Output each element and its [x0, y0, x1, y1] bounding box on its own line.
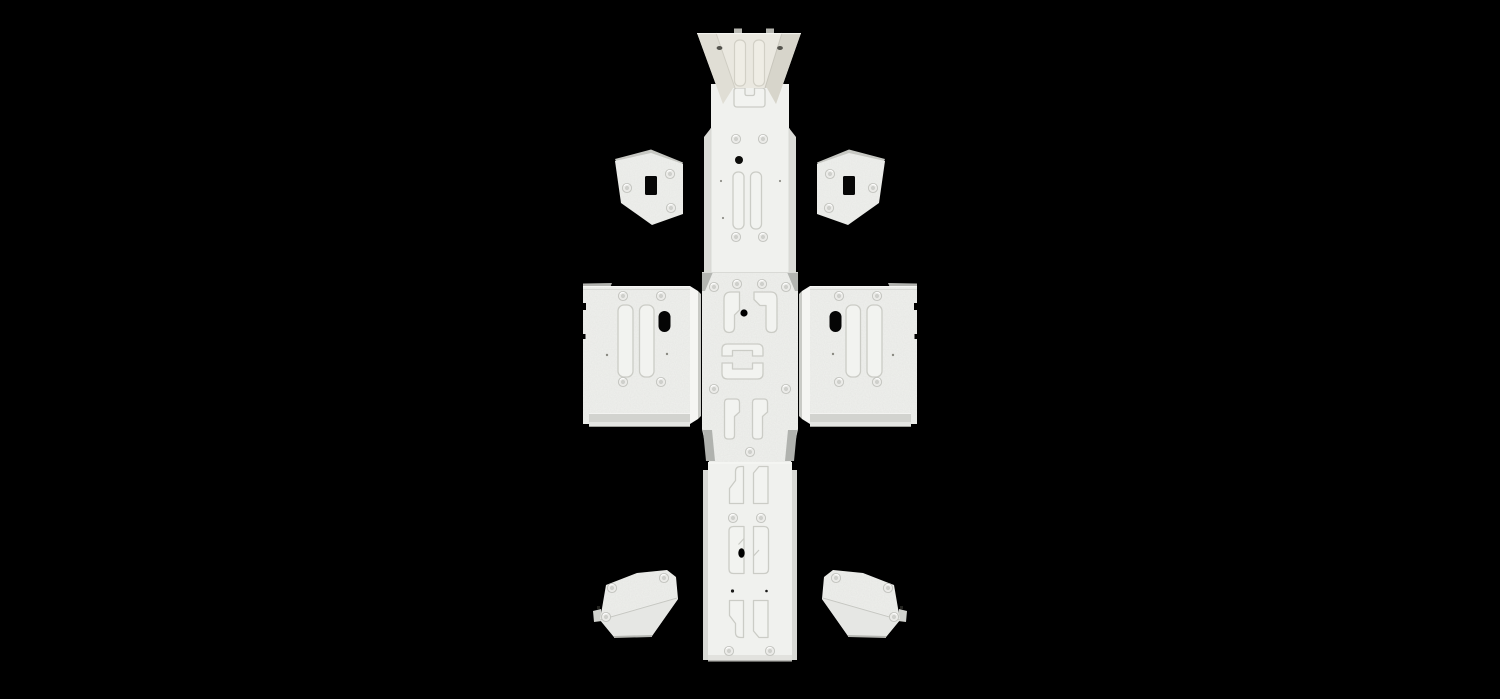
spine-lower — [703, 462, 797, 661]
wing-plate-left — [583, 283, 701, 427]
pilot-dot — [731, 589, 734, 592]
spine-lower-right-flange — [792, 470, 797, 660]
bolt-hole — [732, 279, 741, 288]
bolt-hole — [607, 583, 616, 592]
edge-notch — [583, 303, 586, 310]
spine-upper-right-flange — [789, 128, 796, 283]
rib-stamp — [754, 601, 769, 638]
bolt-hole — [618, 377, 627, 386]
bolt-hole — [758, 134, 767, 143]
spine-lower-plate — [708, 462, 792, 661]
oval-cutout — [738, 548, 744, 558]
rib-stamp — [640, 305, 655, 377]
mount-tab — [766, 29, 774, 34]
wing-bottom-flange-lip — [589, 422, 690, 426]
mount-tab — [734, 29, 742, 34]
spine-bottom-lip — [708, 655, 792, 661]
rib-stamp — [754, 40, 765, 86]
bolt-hole — [665, 169, 674, 178]
pilot-dot — [765, 590, 768, 593]
rib-stamp — [754, 467, 769, 504]
wing-plate-right — [799, 283, 917, 427]
edge-notch — [597, 606, 600, 609]
bolt-hole — [781, 384, 790, 393]
rect-cutout — [645, 176, 657, 195]
pilot-dot — [722, 217, 724, 219]
rib-stamp — [735, 40, 746, 86]
bolt-hole — [781, 282, 790, 291]
rib-stamp — [751, 172, 762, 229]
pilot-dot — [779, 180, 781, 182]
bolt-hole — [656, 291, 665, 300]
bolt-hole — [765, 646, 774, 655]
bolt-hole — [656, 377, 665, 386]
round-cutout — [740, 309, 747, 316]
bolt-hole — [728, 513, 737, 522]
obround-cutout — [659, 311, 671, 332]
spine-upper-left-flange — [704, 128, 711, 283]
bolt-hole — [709, 282, 718, 291]
bolt-hole — [666, 203, 675, 212]
bolt-hole — [724, 646, 733, 655]
bolt-hole — [745, 447, 754, 456]
bolt-hole — [618, 291, 627, 300]
bolt-hole — [757, 279, 766, 288]
spine-upper — [704, 84, 796, 283]
cross-center — [702, 272, 798, 462]
bolt-hole — [758, 232, 767, 241]
pilot-dot — [720, 180, 722, 182]
render-stage — [0, 0, 1500, 699]
spine-lower-left-flange — [703, 470, 708, 660]
slot-hole — [777, 46, 783, 50]
rib-stamp — [733, 172, 744, 229]
bolt-hole — [622, 183, 631, 192]
edge-notch — [583, 334, 586, 339]
bolt-hole — [756, 513, 765, 522]
slot-hole — [717, 46, 723, 50]
render-canvas — [0, 0, 1500, 699]
bolt-hole — [659, 573, 668, 582]
pilot-dot — [666, 353, 668, 355]
bolt-hole — [601, 612, 610, 621]
bolt-hole — [731, 232, 740, 241]
rib-stamp — [754, 527, 769, 574]
wing-bottom-flange — [589, 413, 690, 422]
wing-inner-fold — [690, 286, 698, 424]
bolt-hole — [709, 384, 718, 393]
pilot-dot — [606, 354, 608, 356]
bolt-hole — [731, 134, 740, 143]
round-cutout — [735, 156, 743, 164]
wing-inner-fold-edge — [698, 291, 701, 419]
rib-stamp — [618, 305, 633, 377]
